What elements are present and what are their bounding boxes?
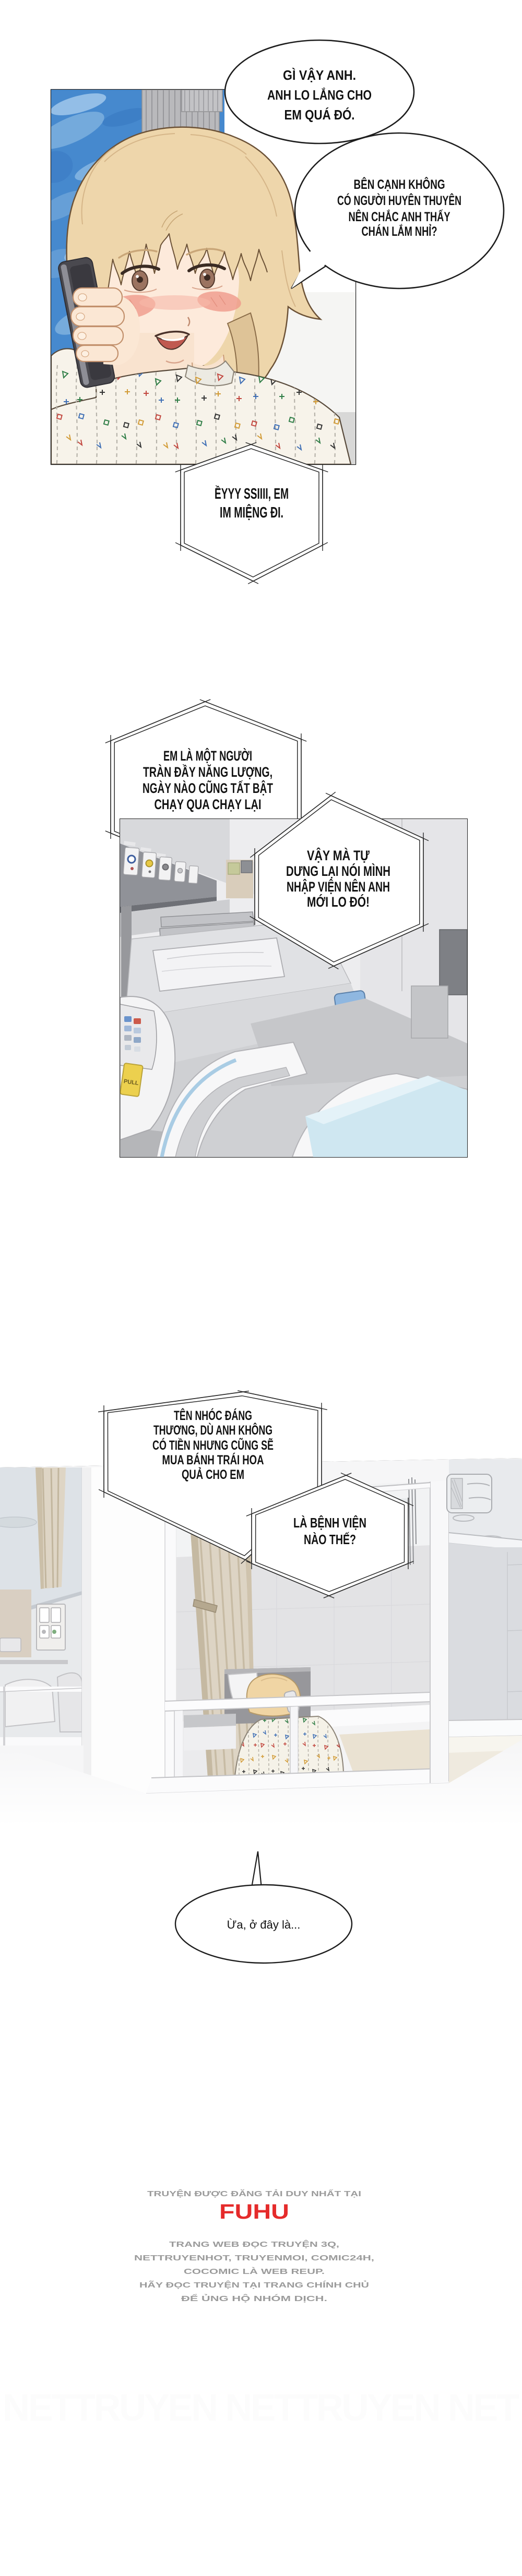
svg-text:LÀ BỆNH VIỆN: LÀ BỆNH VIỆN bbox=[293, 1515, 366, 1531]
svg-text:TRANG WEB ĐỌC TRUYỆN 3Q,: TRANG WEB ĐỌC TRUYỆN 3Q, bbox=[169, 2240, 339, 2249]
svg-text:CHẠY QUA CHẠY LẠI: CHẠY QUA CHẠY LẠI bbox=[155, 797, 262, 812]
svg-text:NÊN CHẮC ANH THẤY: NÊN CHẮC ANH THẤY bbox=[349, 209, 450, 224]
svg-text:EM QUÁ ĐÓ.: EM QUÁ ĐÓ. bbox=[284, 107, 355, 123]
svg-text:NHẬP VIỆN NÊN ANH: NHẬP VIỆN NÊN ANH bbox=[287, 878, 390, 895]
svg-text:MỚI LO ĐÓ!: MỚI LO ĐÓ! bbox=[307, 894, 370, 910]
svg-text:TÊN NHÓC ĐÁNG: TÊN NHÓC ĐÁNG bbox=[174, 1407, 252, 1423]
svg-text:BÊN CẠNH KHÔNG: BÊN CẠNH KHÔNG bbox=[354, 176, 445, 192]
svg-text:NETTRUYENHOT, TRUYENMOI, COMIC: NETTRUYENHOT, TRUYENMOI, COMIC24H, bbox=[134, 2254, 374, 2262]
svg-text:HÃY ĐỌC TRUYỆN TẠI TRANG CHÍNH: HÃY ĐỌC TRUYỆN TẠI TRANG CHÍNH CHỦ bbox=[139, 2280, 369, 2290]
svg-text:ĐỂ ỦNG HỘ NHÓM DỊCH.: ĐỂ ỦNG HỘ NHÓM DỊCH. bbox=[181, 2294, 327, 2303]
svg-text:VẬY MÀ TỰ: VẬY MÀ TỰ bbox=[307, 847, 370, 863]
svg-text:CÓ TIỀN NHƯNG CŨNG SẼ: CÓ TIỀN NHƯNG CŨNG SẼ bbox=[152, 1437, 274, 1453]
svg-text:COCOMIC LÀ WEB REUP.: COCOMIC LÀ WEB REUP. bbox=[184, 2267, 325, 2276]
svg-text:ANH LO LẮNG CHO: ANH LO LẮNG CHO bbox=[267, 87, 372, 103]
svg-text:MUA BÁNH TRÁI HOA: MUA BÁNH TRÁI HOA bbox=[162, 1452, 264, 1467]
svg-text:TRÀN ĐẦY NĂNG LƯỢNG,: TRÀN ĐẦY NĂNG LƯỢNG, bbox=[143, 764, 272, 780]
svg-text:DƯNG LẠI NÓI MÌNH: DƯNG LẠI NÓI MÌNH bbox=[286, 863, 390, 879]
svg-text:IM MIỆNG ĐI.: IM MIỆNG ĐI. bbox=[220, 503, 283, 521]
svg-text:Ừa, ở đây là...: Ừa, ở đây là... bbox=[227, 1918, 301, 1931]
svg-text:CÓ NGƯỜI HUYÊN THUYÊN: CÓ NGƯỜI HUYÊN THUYÊN bbox=[337, 192, 461, 208]
svg-text:GÌ VẬY ANH.: GÌ VẬY ANH. bbox=[283, 67, 356, 83]
svg-text:FUHU: FUHU bbox=[219, 2200, 289, 2223]
svg-text:CHÁN LẮM NHỈ?: CHÁN LẮM NHỈ? bbox=[362, 223, 437, 239]
svg-text:THƯƠNG, DÙ ANH KHÔNG: THƯƠNG, DÙ ANH KHÔNG bbox=[153, 1422, 272, 1438]
svg-text:NÀO THẾ?: NÀO THẾ? bbox=[304, 1532, 356, 1547]
svg-text:EM LÀ MỘT NGƯỜI: EM LÀ MỘT NGƯỜI bbox=[163, 748, 252, 764]
svg-text:TRUYỆN ĐƯỢC ĐĂNG TẢI DUY NHẤT: TRUYỆN ĐƯỢC ĐĂNG TẢI DUY NHẤT TẠI bbox=[147, 2189, 361, 2198]
svg-text:NGÀY NÀO CŨNG TẤT BẬT: NGÀY NÀO CŨNG TẤT BẬT bbox=[143, 780, 273, 796]
svg-text:NETTRUYEN NETTRUYEN NET: NETTRUYEN NETTRUYEN NET bbox=[3, 2387, 519, 2429]
svg-text:ỀYYY SSIIII, EM: ỀYYY SSIIII, EM bbox=[215, 485, 289, 502]
svg-text:QUẢ CHO EM: QUẢ CHO EM bbox=[182, 1466, 244, 1482]
